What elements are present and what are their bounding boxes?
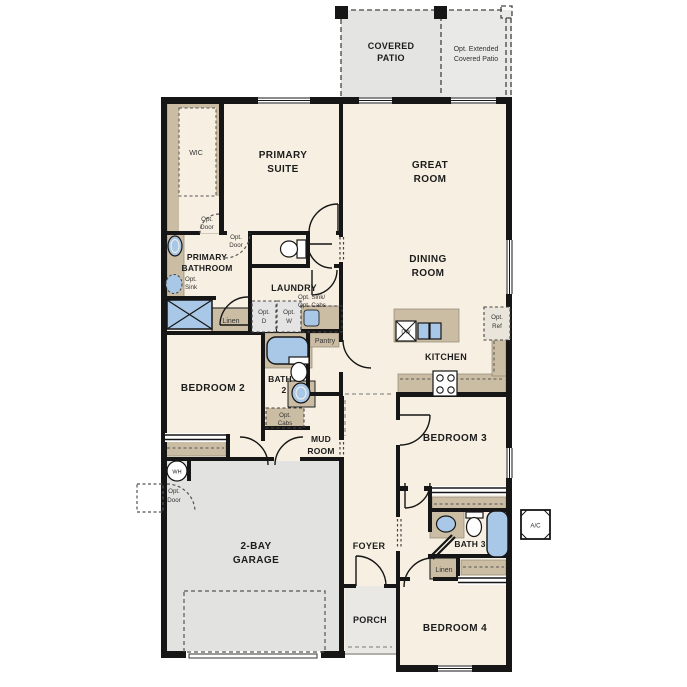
label-opt-sink-cabs-2: Opt. Cabs [298, 302, 326, 309]
label-dw: DW [401, 330, 411, 336]
label-dining-2: ROOM [412, 268, 445, 279]
label-bedroom4: BEDROOM 4 [423, 623, 487, 634]
label-opt-door-garage-1: Opt. [168, 488, 180, 495]
label-porch: PORCH [353, 615, 387, 625]
opt-door-garage-landing [137, 484, 163, 512]
bedroom4-closet-shelf [461, 560, 506, 575]
stove-icon [433, 371, 457, 396]
label-opt-dryer-2: D [262, 318, 267, 325]
window-great-room [359, 97, 392, 104]
floor-plan-canvas: COVERED PATIO Opt. Extended Covered Pati… [0, 0, 687, 687]
toilet-icon-primary [281, 240, 307, 258]
label-primary-bath-1: PRIMARY [187, 252, 227, 262]
window-primary-suite [258, 97, 310, 104]
kitchen-sink-icon-right [430, 323, 441, 339]
label-kitchen: KITCHEN [425, 352, 467, 362]
label-opt-door-wic-2: Door [200, 224, 213, 231]
label-laundry: LAUNDRY [271, 283, 317, 293]
label-opt-sink-cabs-1: Opt. Sink/ [298, 294, 325, 301]
opt-dryer-box [252, 301, 276, 332]
tub-icon-bath3 [487, 511, 508, 557]
label-opt-door-bath-1: Opt. [230, 234, 242, 241]
label-bedroom3: BEDROOM 3 [423, 433, 487, 444]
label-foyer: FOYER [353, 541, 386, 551]
window-bedroom4 [438, 665, 472, 672]
label-bath2-1: BATH [268, 374, 292, 384]
label-bath2-2: 2 [282, 385, 287, 395]
sink-icon-bath3 [437, 516, 456, 532]
label-opt-washer-2: W [286, 318, 292, 325]
label-garage-2: GARAGE [233, 555, 279, 566]
label-covered-patio-1: COVERED [368, 41, 415, 51]
shower-icon [167, 300, 212, 329]
label-opt-door-garage-2: Door [167, 497, 180, 504]
label-great-room-1: GREAT [412, 160, 448, 171]
label-bath3: BATH 3 [454, 539, 485, 549]
label-opt-door-bath-2: Door [229, 242, 242, 249]
label-ac: A/C [530, 523, 541, 530]
label-opt-ref-1: Opt. [491, 314, 503, 321]
label-opt-washer-1: Opt. [283, 309, 295, 316]
label-opt-sink-1: Opt. [185, 276, 197, 283]
label-primary-bath-2: BATHROOM [181, 263, 232, 273]
opt-sink-icon [166, 275, 182, 294]
patio-post-right [434, 6, 447, 19]
window-great-room-2 [451, 97, 496, 104]
label-opt-cabs-1: Opt. [279, 412, 291, 419]
label-opt-cabs-2: Cabs [278, 420, 292, 427]
floor-plan-svg: COVERED PATIO Opt. Extended Covered Pati… [0, 0, 687, 687]
label-wic: WIC [189, 150, 203, 157]
label-linen-bath3: Linen [435, 567, 452, 574]
bypass-doors-bedroom3-closet [432, 486, 506, 495]
window-dining [506, 240, 513, 294]
label-opt-ref-2: Ref [492, 323, 502, 330]
label-opt-door-wic-1: Opt. [201, 216, 213, 223]
bypass-doors-bedroom4-closet [458, 576, 506, 585]
label-covered-patio-2: PATIO [377, 53, 405, 63]
patio-post-left [335, 6, 348, 19]
toilet-icon-bath2 [289, 357, 309, 382]
label-primary-suite-1: PRIMARY [259, 150, 308, 161]
label-great-room-2: ROOM [414, 174, 447, 185]
label-dining-1: DINING [409, 254, 446, 265]
label-mud-room-1: MUD [311, 434, 331, 444]
kitchen-sink-icon-left [418, 323, 429, 339]
label-pantry: Pantry [315, 338, 336, 345]
bypass-doors-bedroom2-closet [165, 433, 226, 442]
label-garage-1: 2-BAY [240, 541, 271, 552]
label-linen-hall: Linen [222, 318, 239, 325]
label-primary-suite-2: SUITE [267, 164, 298, 175]
label-opt-sink-2: Sink [185, 284, 198, 291]
label-opt-dryer-1: Opt. [258, 309, 270, 316]
label-bedroom2: BEDROOM 2 [181, 383, 245, 394]
extended-patio-floor [441, 10, 512, 98]
label-wh: WH [172, 470, 181, 476]
laundry-sink-icon [304, 310, 319, 326]
label-ext-patio-2: Covered Patio [454, 56, 498, 63]
window-bedroom3 [506, 448, 513, 478]
label-mud-room-2: ROOM [307, 446, 334, 456]
sink-icon-bath2 [292, 383, 310, 403]
toilet-icon-bath3 [466, 512, 483, 537]
label-ext-patio-1: Opt. Extended [454, 46, 499, 53]
